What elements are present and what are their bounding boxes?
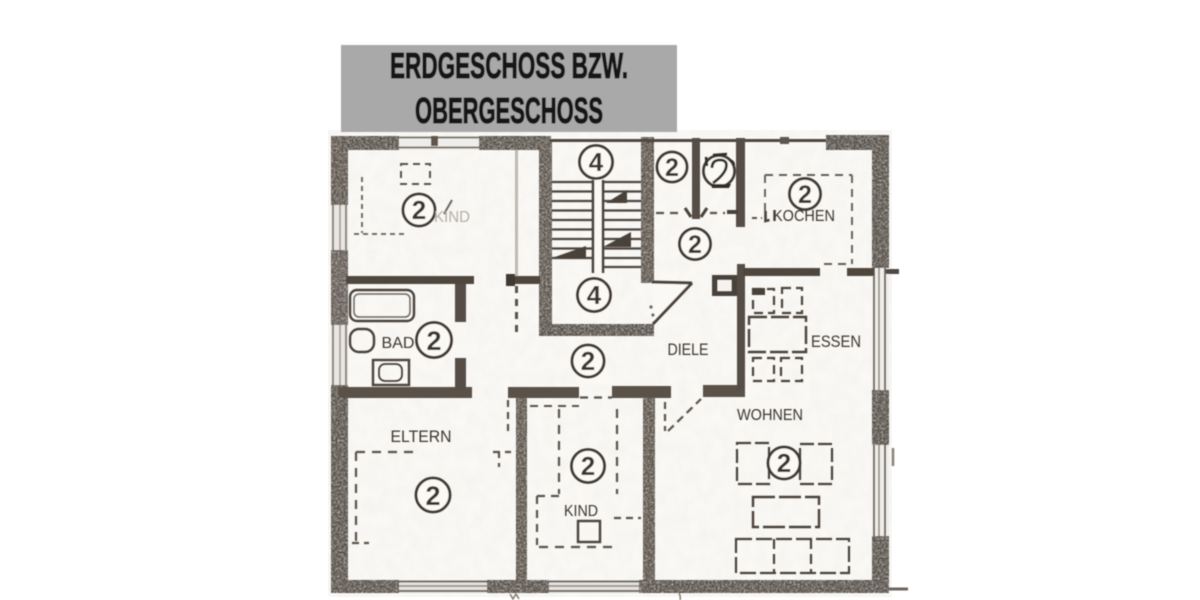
svg-text:2: 2 <box>426 326 441 356</box>
svg-text:BAD: BAD <box>382 335 415 352</box>
svg-text:2: 2 <box>581 451 595 481</box>
svg-text:4: 4 <box>589 147 604 177</box>
svg-text:ELTERN: ELTERN <box>391 427 452 446</box>
svg-text:4: 4 <box>587 280 602 310</box>
svg-text:DIELE: DIELE <box>668 340 709 359</box>
svg-text:ESSEN: ESSEN <box>811 332 861 351</box>
svg-text:WOHNEN: WOHNEN <box>737 407 803 424</box>
svg-text:ERDGESCHOSS BZW.: ERDGESCHOSS BZW. <box>390 45 628 86</box>
svg-text:2: 2 <box>777 448 791 478</box>
svg-text:KOCHEN: KOCHEN <box>773 208 835 225</box>
svg-text:OBERGESCHOSS: OBERGESCHOSS <box>415 90 603 131</box>
svg-text:2: 2 <box>412 195 426 225</box>
svg-text:2: 2 <box>425 481 440 511</box>
svg-text:2: 2 <box>581 346 595 376</box>
svg-text:2: 2 <box>798 181 812 209</box>
svg-text:2: 2 <box>665 154 679 182</box>
svg-text:KIND: KIND <box>564 503 598 520</box>
svg-text:2: 2 <box>688 231 702 259</box>
svg-text:KIND: KIND <box>434 209 470 226</box>
